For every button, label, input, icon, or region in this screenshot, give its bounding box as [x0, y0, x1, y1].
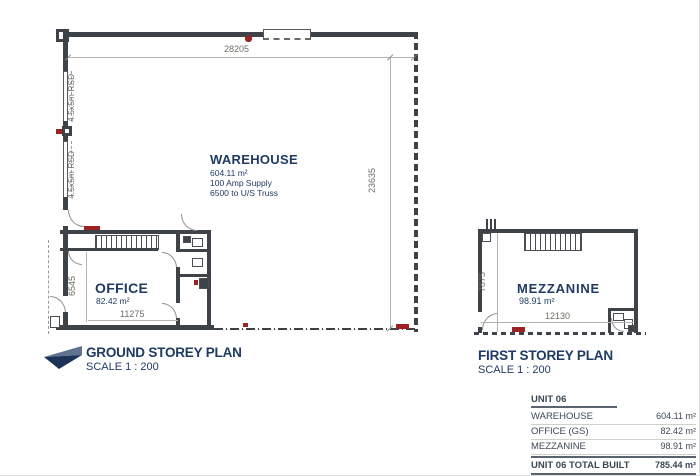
mezzanine-area: 98.91 m²	[519, 296, 555, 306]
mezz-staircase	[524, 233, 582, 251]
row-label: OFFICE (GS)	[531, 426, 589, 437]
mezz-right-wall	[634, 229, 638, 333]
row-label: WAREHOUSE	[531, 411, 593, 422]
dim-line-12130	[481, 322, 633, 323]
mezzanine-label: MEZZANINE	[517, 281, 600, 296]
mezz-wc-geyser	[628, 325, 635, 332]
first-plan-scale: SCALE 1 : 200	[478, 364, 551, 376]
mezz-wc-wall-h	[608, 308, 637, 311]
table-row: MEZZANINE 98.91 m²	[531, 440, 696, 455]
dim-label-7875: 7875	[487, 282, 511, 292]
total-label: UNIT 06 TOTAL BUILT	[531, 460, 630, 471]
floor-plan-sheet: 4.5x5m RSD 4.5x5m RSD 28205 23635 WAREHO…	[0, 0, 700, 476]
area-table-header-rule	[531, 406, 617, 408]
duct-box	[482, 233, 491, 242]
row-value: 604.11 m²	[656, 411, 696, 421]
table-row: OFFICE (GS) 82.42 m²	[531, 425, 696, 440]
row-label: MEZZANINE	[531, 441, 586, 452]
table-total-row: UNIT 06 TOTAL BUILT 785.44 m²	[531, 456, 696, 475]
row-value: 82.42 m²	[660, 426, 696, 436]
mezz-wc-door-arc	[611, 318, 624, 332]
vent-pipe	[490, 219, 492, 229]
vent-pipe	[486, 219, 488, 229]
first-plan-title: FIRST STOREY PLAN	[478, 348, 613, 363]
area-table: UNIT 06 WAREHOUSE 604.11 m² OFFICE (GS) …	[531, 394, 696, 476]
mezz-power-fixture	[512, 327, 525, 332]
area-table-header: UNIT 06	[531, 394, 696, 406]
total-value: 785.44 m²	[655, 460, 696, 470]
mezz-floor-line	[474, 332, 646, 335]
table-row: WAREHOUSE 604.11 m²	[531, 410, 696, 425]
dim-label-12130: 12130	[545, 311, 570, 321]
mezz-left-wall	[478, 229, 482, 312]
vent-pipe	[494, 219, 496, 229]
row-value: 98.91 m²	[660, 441, 696, 451]
